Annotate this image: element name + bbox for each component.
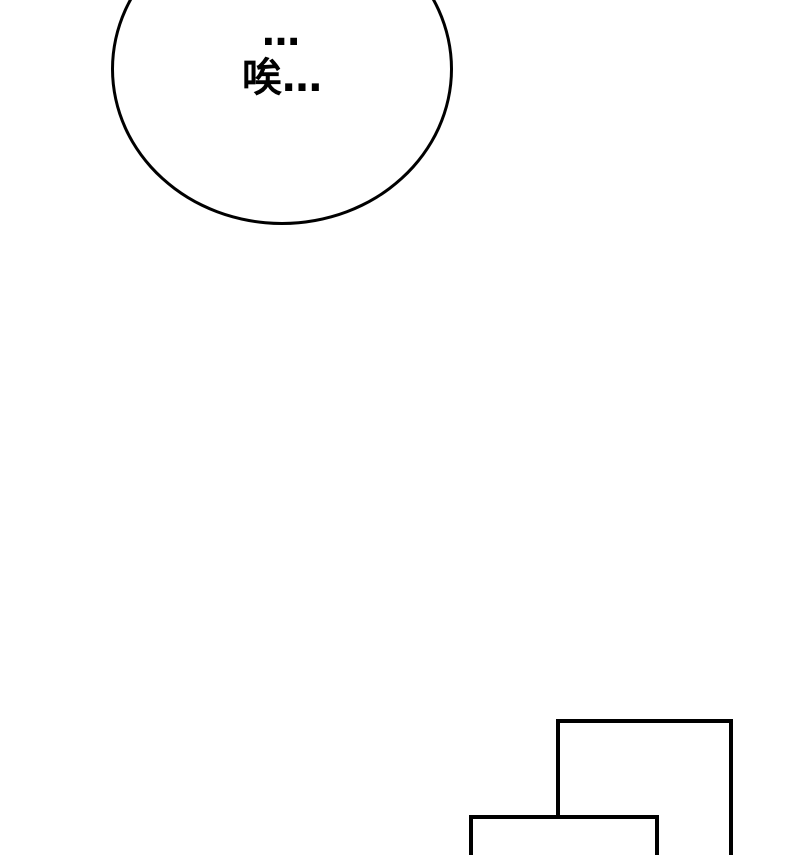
speech-bubble-text: … 唉… — [111, 10, 453, 102]
comic-page: … 唉… — [0, 0, 800, 855]
panel-frame-small — [469, 815, 659, 855]
speech-line-ellipsis: … — [111, 10, 453, 54]
speech-line-sigh: 唉… — [111, 54, 453, 102]
